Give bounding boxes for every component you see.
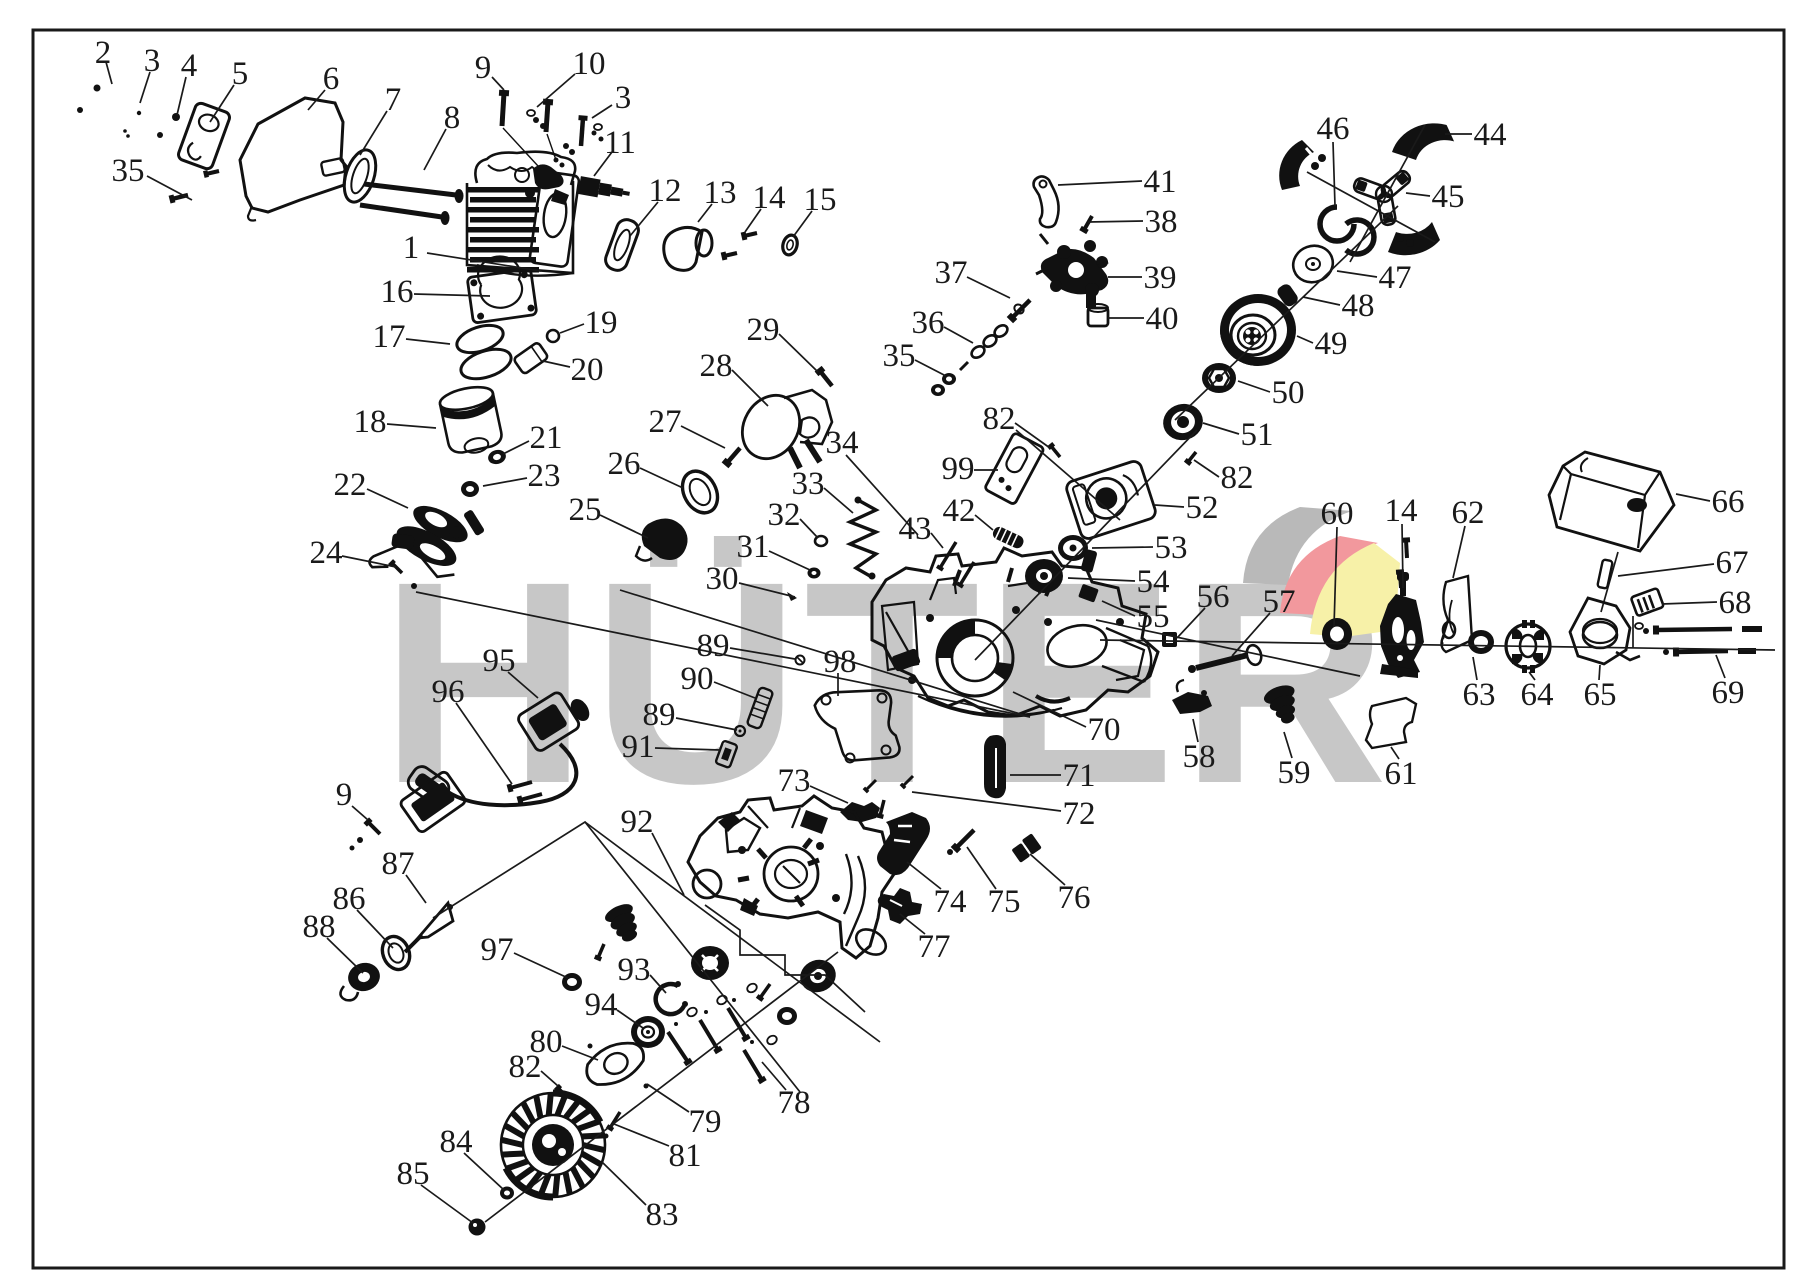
- svg-text:18: 18: [354, 404, 387, 440]
- svg-text:51: 51: [1241, 417, 1274, 453]
- svg-text:36: 36: [912, 305, 945, 341]
- svg-text:82: 82: [1221, 460, 1254, 496]
- svg-text:73: 73: [778, 763, 811, 799]
- svg-text:93: 93: [618, 952, 651, 988]
- svg-text:70: 70: [1088, 712, 1121, 748]
- svg-text:60: 60: [1321, 496, 1354, 532]
- svg-text:54: 54: [1137, 564, 1170, 600]
- svg-text:75: 75: [988, 884, 1021, 920]
- svg-text:50: 50: [1272, 375, 1305, 411]
- svg-text:2: 2: [95, 35, 112, 71]
- svg-text:7: 7: [385, 82, 402, 118]
- svg-text:4: 4: [181, 48, 198, 84]
- svg-text:63: 63: [1463, 677, 1496, 713]
- svg-text:13: 13: [704, 175, 737, 211]
- svg-text:98: 98: [824, 644, 857, 680]
- svg-text:40: 40: [1146, 301, 1179, 337]
- svg-text:64: 64: [1521, 677, 1554, 713]
- svg-text:59: 59: [1278, 755, 1311, 791]
- svg-text:14: 14: [753, 180, 786, 216]
- svg-text:66: 66: [1712, 484, 1745, 520]
- svg-text:77: 77: [918, 929, 951, 965]
- svg-text:57: 57: [1263, 584, 1296, 620]
- svg-text:85: 85: [397, 1156, 430, 1192]
- svg-text:71: 71: [1063, 758, 1096, 794]
- svg-text:25: 25: [569, 492, 602, 528]
- svg-text:72: 72: [1063, 796, 1096, 832]
- svg-text:44: 44: [1474, 117, 1507, 153]
- svg-text:30: 30: [706, 561, 739, 597]
- svg-text:19: 19: [585, 305, 618, 341]
- svg-text:16: 16: [381, 274, 414, 310]
- svg-text:52: 52: [1186, 490, 1219, 526]
- svg-text:67: 67: [1716, 545, 1749, 581]
- svg-text:28: 28: [700, 348, 733, 384]
- svg-text:9: 9: [475, 50, 492, 86]
- svg-text:69: 69: [1712, 675, 1745, 711]
- svg-text:5: 5: [232, 56, 249, 92]
- svg-text:89: 89: [697, 628, 730, 664]
- svg-text:82: 82: [983, 401, 1016, 437]
- svg-text:81: 81: [669, 1138, 702, 1174]
- svg-text:34: 34: [826, 425, 859, 461]
- svg-text:9: 9: [336, 777, 353, 813]
- svg-text:31: 31: [737, 529, 770, 565]
- svg-text:76: 76: [1058, 880, 1091, 916]
- svg-text:55: 55: [1137, 599, 1170, 635]
- svg-text:38: 38: [1145, 204, 1178, 240]
- svg-text:99: 99: [942, 451, 975, 487]
- svg-text:6: 6: [323, 61, 340, 97]
- svg-text:42: 42: [943, 493, 976, 529]
- svg-text:94: 94: [585, 987, 618, 1023]
- svg-text:20: 20: [571, 352, 604, 388]
- svg-text:48: 48: [1342, 288, 1375, 324]
- svg-text:21: 21: [530, 420, 563, 456]
- svg-text:45: 45: [1432, 179, 1465, 215]
- svg-text:3: 3: [615, 80, 632, 116]
- svg-text:39: 39: [1144, 260, 1177, 296]
- svg-text:23: 23: [528, 458, 561, 494]
- svg-text:3: 3: [144, 43, 161, 79]
- svg-text:91: 91: [622, 729, 655, 765]
- svg-text:32: 32: [768, 497, 801, 533]
- svg-text:89: 89: [643, 697, 676, 733]
- svg-text:53: 53: [1155, 530, 1188, 566]
- svg-text:15: 15: [804, 182, 837, 218]
- svg-text:24: 24: [310, 535, 343, 571]
- svg-text:41: 41: [1144, 164, 1177, 200]
- svg-text:88: 88: [303, 909, 336, 945]
- svg-text:95: 95: [483, 643, 516, 679]
- svg-text:56: 56: [1197, 579, 1230, 615]
- svg-text:37: 37: [935, 255, 968, 291]
- svg-text:8: 8: [444, 100, 461, 136]
- svg-text:47: 47: [1379, 260, 1412, 296]
- svg-text:46: 46: [1317, 111, 1350, 147]
- svg-text:35: 35: [883, 338, 916, 374]
- svg-text:82: 82: [509, 1049, 542, 1085]
- svg-text:90: 90: [681, 661, 714, 697]
- svg-text:43: 43: [899, 511, 932, 547]
- svg-text:61: 61: [1385, 756, 1418, 792]
- svg-text:97: 97: [481, 932, 514, 968]
- svg-text:86: 86: [333, 881, 366, 917]
- svg-text:96: 96: [432, 674, 465, 710]
- svg-text:68: 68: [1719, 585, 1752, 621]
- svg-text:92: 92: [621, 804, 654, 840]
- svg-text:78: 78: [778, 1085, 811, 1121]
- svg-text:11: 11: [604, 125, 636, 161]
- svg-text:65: 65: [1584, 677, 1617, 713]
- svg-text:49: 49: [1315, 326, 1348, 362]
- svg-text:83: 83: [646, 1197, 679, 1233]
- svg-text:35: 35: [112, 153, 145, 189]
- svg-text:22: 22: [334, 467, 367, 503]
- svg-text:14: 14: [1385, 493, 1418, 529]
- svg-text:10: 10: [573, 46, 606, 82]
- svg-text:12: 12: [649, 173, 682, 209]
- svg-text:17: 17: [373, 319, 406, 355]
- svg-text:29: 29: [747, 312, 780, 348]
- svg-text:87: 87: [382, 846, 415, 882]
- svg-text:79: 79: [689, 1104, 722, 1140]
- svg-text:62: 62: [1452, 495, 1485, 531]
- svg-text:58: 58: [1183, 739, 1216, 775]
- svg-text:1: 1: [403, 230, 420, 266]
- svg-text:26: 26: [608, 446, 641, 482]
- svg-text:27: 27: [649, 404, 682, 440]
- svg-text:84: 84: [440, 1124, 473, 1160]
- svg-text:74: 74: [934, 884, 967, 920]
